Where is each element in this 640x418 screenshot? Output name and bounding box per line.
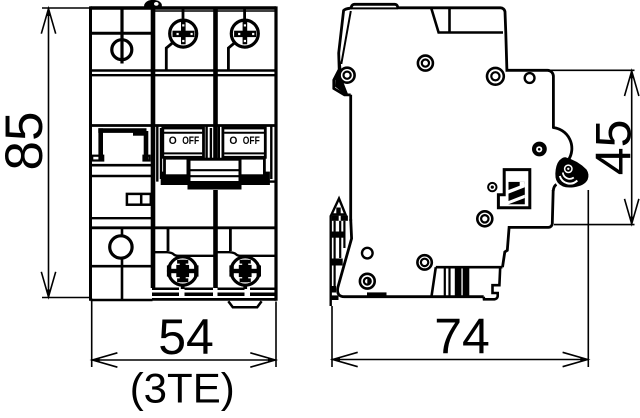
svg-text:74: 74: [434, 309, 490, 365]
svg-text:O: O: [229, 135, 237, 147]
svg-text:OFF: OFF: [243, 135, 260, 147]
svg-text:OFF: OFF: [182, 135, 199, 147]
svg-text:(3TE): (3TE): [130, 365, 235, 412]
svg-text:54: 54: [158, 309, 214, 365]
svg-text:45: 45: [586, 120, 640, 176]
svg-text:85: 85: [0, 112, 54, 171]
svg-text:O: O: [169, 135, 177, 147]
